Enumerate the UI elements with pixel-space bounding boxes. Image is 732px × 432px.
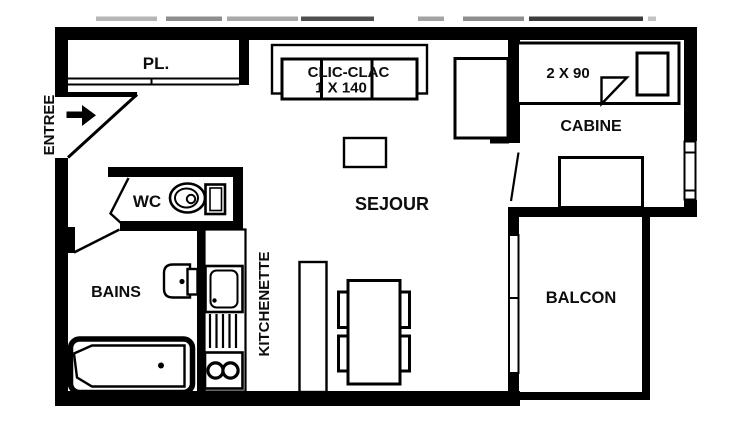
wall-balcon-right: [642, 217, 650, 400]
balcon-window: [509, 235, 519, 373]
room-label-cabine: CABINE: [560, 118, 622, 135]
wall-balcon-left-bottom: [508, 373, 519, 392]
wall-left-lower: [55, 158, 68, 406]
room-label-wc: WC: [133, 192, 161, 211]
dash-segment: [418, 17, 444, 22]
toilet-drain: [187, 195, 195, 203]
wall-balcon-bottom: [519, 392, 650, 400]
bathtub: [74, 346, 185, 387]
sofa-label-line2: 1 X 140: [315, 80, 367, 97]
kitchenette-unit: [205, 230, 246, 392]
chair: [339, 292, 348, 328]
arrow-shaft: [67, 112, 83, 119]
dash-segment: [529, 17, 643, 22]
entree-arrow-icon: [67, 105, 97, 126]
wall-wc-top: [108, 167, 243, 177]
wall-right-upper: [684, 27, 697, 141]
room-label-entree: ENTREE: [41, 95, 58, 156]
hob-burner: [208, 363, 223, 378]
cabine-second-bed: [560, 158, 643, 208]
room-label-bains: BAINS: [91, 284, 141, 301]
room-label-balcon: BALCON: [546, 289, 617, 307]
cabine-bed-label: 2 X 90: [546, 65, 589, 82]
cabine-bed-pillow: [637, 53, 668, 95]
scan-noise-dashes: [96, 17, 656, 22]
washbasin-tap: [188, 269, 198, 295]
cabine-door-leaf: [490, 140, 509, 144]
closet-sliding-doors: [68, 78, 239, 86]
bains-door-swing: [74, 230, 120, 253]
wc-fixtures: [170, 184, 225, 215]
chair: [339, 336, 348, 371]
sejour-furniture: [272, 45, 508, 392]
room-label-sejour: SEJOUR: [355, 194, 429, 214]
wall-balcon-left-top: [508, 217, 519, 235]
entree-door-swing: [68, 95, 137, 158]
chair: [401, 336, 410, 371]
room-label-placard: PL.: [143, 54, 169, 73]
dash-segment: [227, 17, 298, 22]
sofa-label-line1: CLIC-CLAC: [308, 64, 390, 81]
dash-segment: [463, 17, 524, 22]
wardrobe: [455, 59, 508, 139]
dash-segment: [166, 17, 222, 22]
dash-segment: [96, 17, 157, 22]
dining-table: [348, 281, 400, 385]
wall-closet-right: [239, 40, 249, 85]
floor-plan: PL. ENTREE WC BAINS KITCHENETTE SEJOUR C…: [0, 0, 732, 432]
sink-drain: [212, 298, 216, 302]
coffee-table: [344, 138, 386, 167]
floorplan-canvas: PL. ENTREE WC BAINS KITCHENETTE SEJOUR C…: [0, 0, 732, 432]
arrow-head: [82, 105, 96, 126]
washbasin-drain: [179, 279, 184, 284]
counter-column: [300, 262, 327, 392]
bathtub-drain: [158, 363, 164, 369]
dash-segment: [648, 17, 656, 22]
room-label-kitchenette: KITCHENETTE: [256, 252, 273, 357]
wall-top: [55, 27, 697, 40]
washbasin: [164, 265, 190, 298]
wc-door-swing: [111, 178, 129, 224]
dash-segment: [301, 17, 374, 22]
wall-left-upper: [55, 27, 68, 97]
entree-door-leaf: [56, 92, 137, 97]
chair: [401, 292, 410, 328]
hob-burner: [223, 363, 238, 378]
cabine-door-swing: [511, 153, 519, 202]
wall-bains-door-stub: [68, 227, 75, 253]
toilet-tank-inner: [210, 188, 222, 211]
